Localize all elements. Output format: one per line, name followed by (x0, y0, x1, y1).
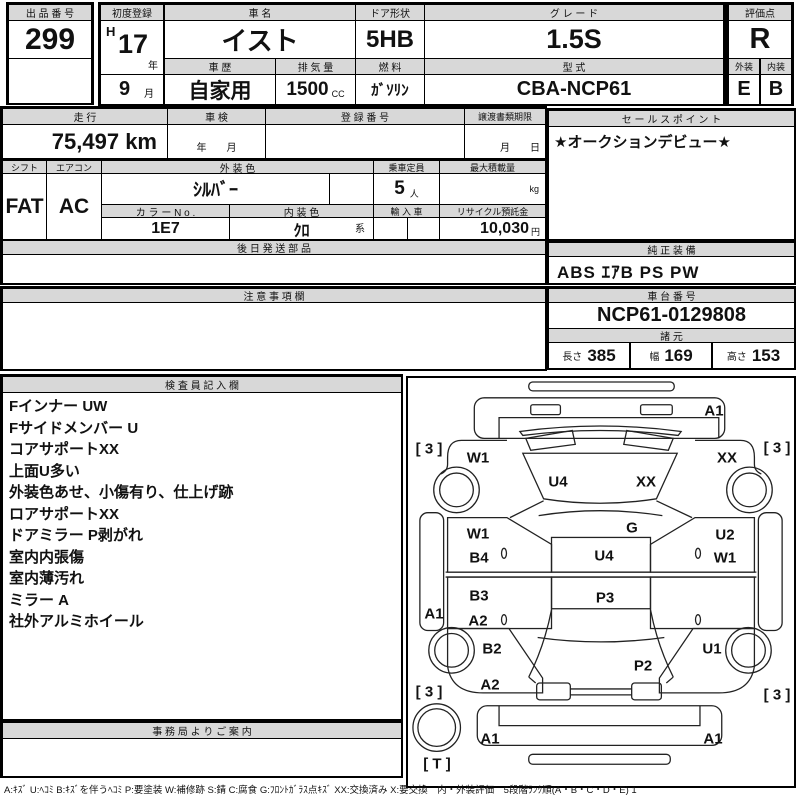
transfer-deadline-label: 譲渡書類期限 (464, 108, 546, 125)
dimensions-label: 諸 元 (548, 328, 795, 343)
inspector-notes: Fインナー UWFサイドメンバー UコアサポートXX上面U多い外装色あせ、小傷有… (2, 392, 402, 720)
diagram-damage-label: B2 (482, 641, 501, 658)
diagram-damage-label: XX (636, 474, 656, 491)
later-parts-label: 後 日 発 送 部 品 (2, 240, 546, 255)
max-load-label: 最大積載量 (439, 160, 546, 174)
transfer-deadline-value: 月 日 (464, 124, 546, 159)
recycle-value: 10,030 (480, 220, 529, 238)
dimension-height-cell: 高さ 153 (712, 342, 795, 369)
diagram-damage-label: [ 3 ] (416, 441, 443, 458)
caution-value (2, 302, 546, 370)
recycle-cell: 10,030 円 (439, 217, 546, 240)
diagram-damage-label: A1 (480, 731, 499, 748)
damage-code-legend: A:ｷｽﾞ U:ﾍｺﾐ B:ｷｽﾞを伴うﾍｺﾐ P:要塗装 W:補修跡 S:錆 … (4, 782, 637, 796)
inspector-label: 検 査 員 記 入 欄 (2, 376, 402, 393)
inspector-note-line: 社外アルミホイール (9, 611, 395, 633)
office-value (2, 738, 402, 777)
inspector-note-line: 室内内張傷 (9, 547, 395, 569)
history-value: 自家用 (164, 74, 276, 105)
car-name-label: 車 名 (164, 4, 356, 21)
exterior-value: E (728, 74, 760, 105)
displacement-unit: CC (332, 89, 345, 99)
diagram-damage-label: XX (717, 450, 737, 467)
import-car-label: 輸 入 車 (373, 204, 440, 218)
capacity-unit: 人 (410, 187, 419, 200)
grade-label: グ レ ー ド (424, 4, 724, 21)
color-no-label: カ ラ ー N o . (101, 204, 230, 218)
history-label: 車 歴 (164, 58, 276, 75)
aircon-label: エアコン (46, 160, 102, 174)
diagram-damage-label: [ 3 ] (764, 687, 791, 704)
int-color-label: 内 装 色 (229, 204, 374, 218)
first-reg-year-unit: 年 (148, 57, 158, 72)
first-reg-month-cell: 9 月 (100, 74, 164, 105)
mileage-value: 75,497 km (2, 124, 168, 159)
car-name-value: イスト (164, 20, 356, 59)
inspector-note-line: 上面U多い (9, 461, 395, 483)
diagram-damage-label: P2 (634, 658, 652, 675)
inspector-note-line: コアサポートXX (9, 439, 395, 461)
registration-no-label: 登 録 番 号 (265, 108, 465, 125)
dimension-height-label: 高さ (727, 348, 747, 363)
int-color-value: ｸﾛ (293, 217, 309, 240)
diagram-damage-label: U2 (715, 527, 734, 544)
door-shape-value: 5HB (355, 20, 425, 59)
int-color-cell: ｸﾛ 系 (229, 217, 374, 240)
score-value: R (728, 20, 792, 59)
diagram-damage-label: U4 (594, 548, 613, 565)
first-reg-year: 17 (118, 29, 148, 60)
dimension-width-label: 幅 (649, 348, 659, 363)
diagram-damage-label: B3 (469, 588, 488, 605)
grade-value: 1.5S (424, 20, 724, 59)
caution-label: 注 意 事 項 欄 (2, 288, 546, 303)
ext-color-empty-cell (329, 173, 374, 205)
interior-label: 内装 (760, 58, 792, 75)
exterior-label: 外装 (728, 58, 760, 75)
equipment-label: 純 正 装 備 (548, 242, 795, 257)
inspector-note-line: Fサイドメンバー U (9, 418, 395, 440)
auction-no-label: 出 品 番 号 (8, 4, 92, 21)
diagram-damage-label: G (626, 520, 638, 537)
auction-sheet: 出 品 番 号 299 初度登録 H 17 年 9 月 車 名 イスト 車 歴 … (0, 0, 800, 800)
shaken-value: 年 月 (167, 124, 266, 159)
first-reg-month: 9 (119, 78, 130, 101)
dimension-length-cell: 長さ 385 (548, 342, 630, 369)
recycle-label: リサイクル預託金 (439, 204, 546, 218)
mileage-label: 走 行 (2, 108, 168, 125)
car-damage-diagram: A1[ 3 ]W1XX[ 3 ]U4XXGW1B4U2W1U4B3P3A1A2B… (406, 376, 796, 788)
displacement-value: 1500 (286, 79, 328, 101)
inspector-note-line: ドアミラー P剥がれ (9, 525, 395, 547)
interior-value: B (760, 74, 792, 105)
chassis-no-value: NCP61-0129808 (548, 302, 795, 329)
equipment-value: ABS ｴｱB PS PW (548, 256, 795, 284)
diagram-damage-label: [ T ] (423, 756, 451, 773)
first-reg-year-cell: H 17 年 (100, 20, 164, 75)
diagram-damage-label: W1 (714, 550, 737, 567)
sales-point-value: ★オークションデビュー★ (548, 126, 795, 240)
auction-no-empty-box (8, 58, 92, 104)
shift-label: シフト (2, 160, 47, 174)
dimension-length-label: 長さ (562, 348, 582, 363)
diagram-damage-label: A2 (468, 613, 487, 630)
sales-point-label: セ ー ル ス ポ イ ン ト (548, 110, 795, 127)
ext-color-value: ｼﾙﾊﾞｰ (101, 173, 330, 205)
diagram-damage-label: U1 (702, 641, 721, 658)
diagram-damage-label: B4 (469, 550, 488, 567)
diagram-damage-label: U4 (548, 474, 567, 491)
model-code-label: 型 式 (424, 58, 724, 75)
shift-value: FAT (2, 173, 47, 240)
diagram-damage-label: P3 (596, 590, 614, 607)
registration-no-value (265, 124, 465, 159)
inspector-note-line: 室内薄汚れ (9, 568, 395, 590)
door-shape-label: ドア形状 (355, 4, 425, 21)
dimension-width-cell: 幅 169 (630, 342, 712, 369)
diagram-damage-label: W1 (467, 450, 490, 467)
max-load-value: kg (439, 173, 546, 205)
chassis-no-label: 車 台 番 号 (548, 288, 795, 303)
diagram-damage-label: W1 (467, 526, 490, 543)
displacement-label: 排 気 量 (275, 58, 356, 75)
ext-color-label: 外 装 色 (101, 160, 374, 174)
displacement-cell: 1500 CC (275, 74, 356, 105)
diagram-damage-label: A1 (424, 606, 443, 623)
diagram-damage-label: A1 (703, 731, 722, 748)
shaken-label: 車 検 (167, 108, 266, 125)
fuel-label: 燃 料 (355, 58, 425, 75)
auction-no-value: 299 (8, 20, 92, 59)
inspector-note-line: ミラー A (9, 590, 395, 612)
later-parts-value (2, 254, 546, 284)
first-reg-label: 初度登録 (100, 4, 164, 21)
diagram-damage-label: A2 (480, 677, 499, 694)
capacity-label: 乗車定員 (373, 160, 440, 174)
recycle-unit: 円 (531, 225, 540, 238)
dimension-height-value: 153 (752, 346, 780, 366)
diagram-damage-labels: A1[ 3 ]W1XX[ 3 ]U4XXGW1B4U2W1U4B3P3A1A2B… (408, 378, 794, 786)
aircon-value: AC (46, 173, 102, 240)
import-car-divider (407, 218, 408, 239)
inspector-note-line: ロアサポートXX (9, 504, 395, 526)
color-no-value: 1E7 (101, 217, 230, 240)
dimension-width-value: 169 (664, 346, 692, 366)
capacity-cell: 5 人 (373, 173, 440, 205)
import-car-value (373, 217, 440, 240)
score-label: 評価点 (728, 4, 792, 21)
diagram-damage-label: A1 (704, 403, 723, 420)
diagram-damage-label: [ 3 ] (416, 684, 443, 701)
fuel-value: ｶﾞｿﾘﾝ (355, 74, 425, 105)
model-code-value: CBA-NCP61 (424, 74, 724, 105)
diagram-damage-label: [ 3 ] (764, 440, 791, 457)
first-reg-month-unit: 月 (144, 85, 154, 100)
inspector-note-line: 外装色あせ、小傷有り、仕上げ跡 (9, 482, 395, 504)
inspector-note-line: Fインナー UW (9, 396, 395, 418)
first-reg-era: H (106, 24, 115, 39)
dimension-length-value: 385 (587, 346, 615, 366)
int-color-suffix: 系 (355, 220, 365, 235)
office-label: 事 務 局 よ り ご 案 内 (2, 722, 402, 739)
capacity-value: 5 (394, 178, 405, 200)
